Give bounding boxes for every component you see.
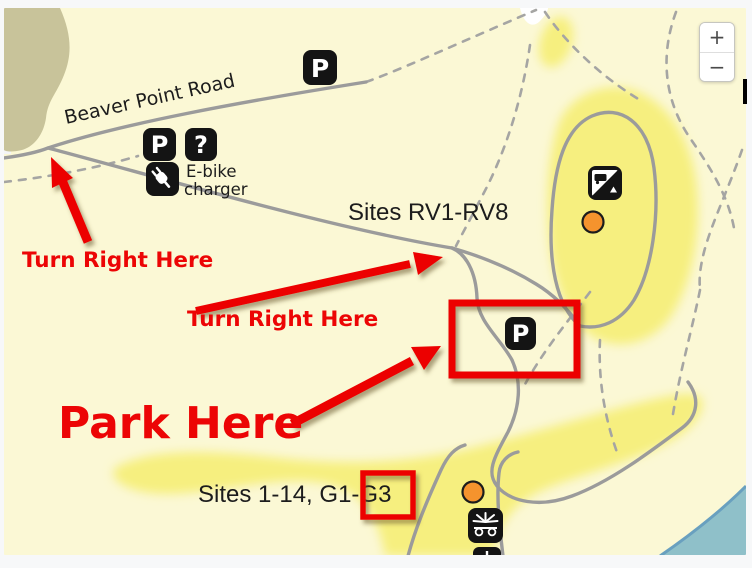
svg-text:P: P: [512, 320, 530, 348]
parking-icon-main: P: [143, 128, 176, 161]
scrollbar-fragment: [743, 79, 747, 104]
svg-text:P: P: [151, 131, 169, 159]
svg-text:?: ?: [194, 131, 208, 159]
zoom-out-button[interactable]: −: [700, 53, 734, 82]
turn-right-text-2: Turn Right Here: [187, 307, 378, 332]
map-zoom-control: + −: [699, 22, 735, 82]
zoom-in-button[interactable]: +: [700, 23, 734, 53]
parking-icon-park-here: P: [505, 317, 536, 350]
ebike-label-line2: charger: [184, 180, 248, 199]
rv-sites-label: Sites RV1-RV8: [348, 199, 509, 226]
ebike-charger-icon: [146, 162, 179, 196]
svg-text:P: P: [311, 54, 329, 83]
site-marker-rv: [583, 212, 604, 233]
campground-map[interactable]: Beaver Point Road Sites RV1-RV8 Sites 1-…: [0, 0, 752, 568]
turn-right-text-1: Turn Right Here: [22, 248, 213, 273]
info-icon: ?: [185, 128, 217, 161]
site-marker-tent: [463, 482, 484, 503]
campfire-icon: [468, 508, 503, 543]
parking-icon-north: P: [303, 50, 337, 85]
park-here-text: Park Here: [58, 398, 303, 449]
rv-tent-camping-icon: [588, 166, 622, 200]
ebike-label-line1: E-bike: [186, 162, 237, 181]
